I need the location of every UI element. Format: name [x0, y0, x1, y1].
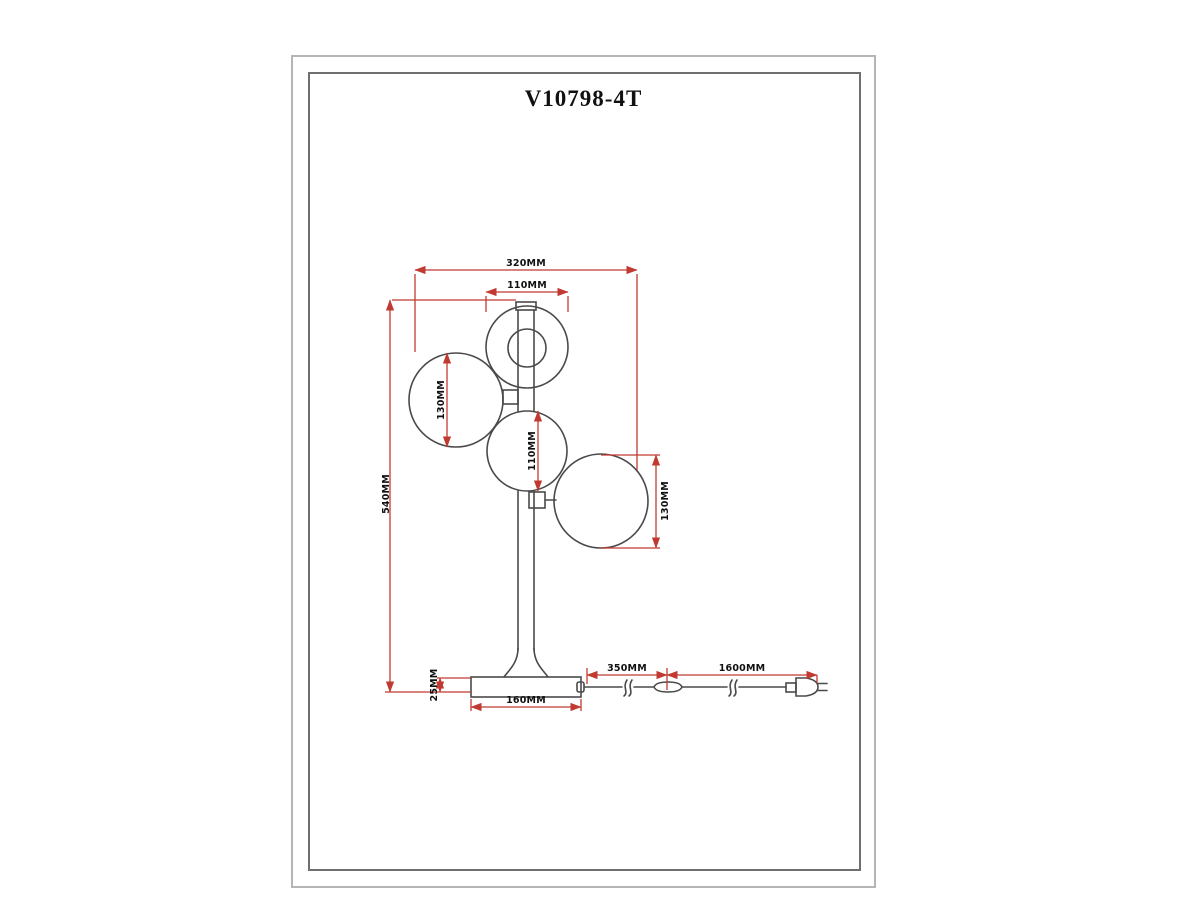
label-overall-width: 320MM	[506, 258, 546, 269]
stem-foot-flare-left	[504, 648, 518, 677]
stem-foot-flare-right	[534, 648, 548, 677]
page: V10798-4T	[0, 0, 1200, 900]
cord-break-1b	[629, 680, 632, 696]
inline-switch	[654, 682, 682, 692]
socket-left-globe	[503, 390, 518, 404]
lamp-base	[471, 677, 581, 697]
cord-break-2b	[734, 680, 737, 696]
label-base-height: 25MM	[429, 669, 440, 702]
label-overall-height: 540MM	[381, 474, 392, 514]
lamp-outline	[409, 302, 827, 697]
cord-break-1	[624, 680, 627, 696]
plug-body	[796, 678, 818, 696]
label-base-diameter: 160MM	[506, 695, 546, 706]
socket-right-globe	[529, 492, 545, 508]
label-right-globe-diameter: 130MM	[660, 481, 671, 521]
label-left-globe-diameter: 130MM	[436, 380, 447, 420]
globe-left	[409, 353, 503, 447]
dimension-labels: 320MM 110MM 540MM 130MM 110MM 130MM 25MM…	[381, 258, 765, 706]
label-middle-globe-diameter: 110MM	[527, 431, 538, 471]
label-cord-base-to-switch: 350MM	[607, 663, 647, 674]
label-cord-switch-to-plug: 1600MM	[719, 663, 766, 674]
plug-neck	[786, 683, 796, 692]
dimension-lines	[385, 270, 817, 711]
technical-drawing: 320MM 110MM 540MM 130MM 110MM 130MM 25MM…	[0, 0, 1200, 900]
globe-right	[554, 454, 648, 548]
label-top-globe-diameter: 110MM	[507, 280, 547, 291]
globe-top-inner-ring	[508, 329, 546, 367]
globe-top	[486, 306, 568, 388]
cord-break-2	[729, 680, 732, 696]
